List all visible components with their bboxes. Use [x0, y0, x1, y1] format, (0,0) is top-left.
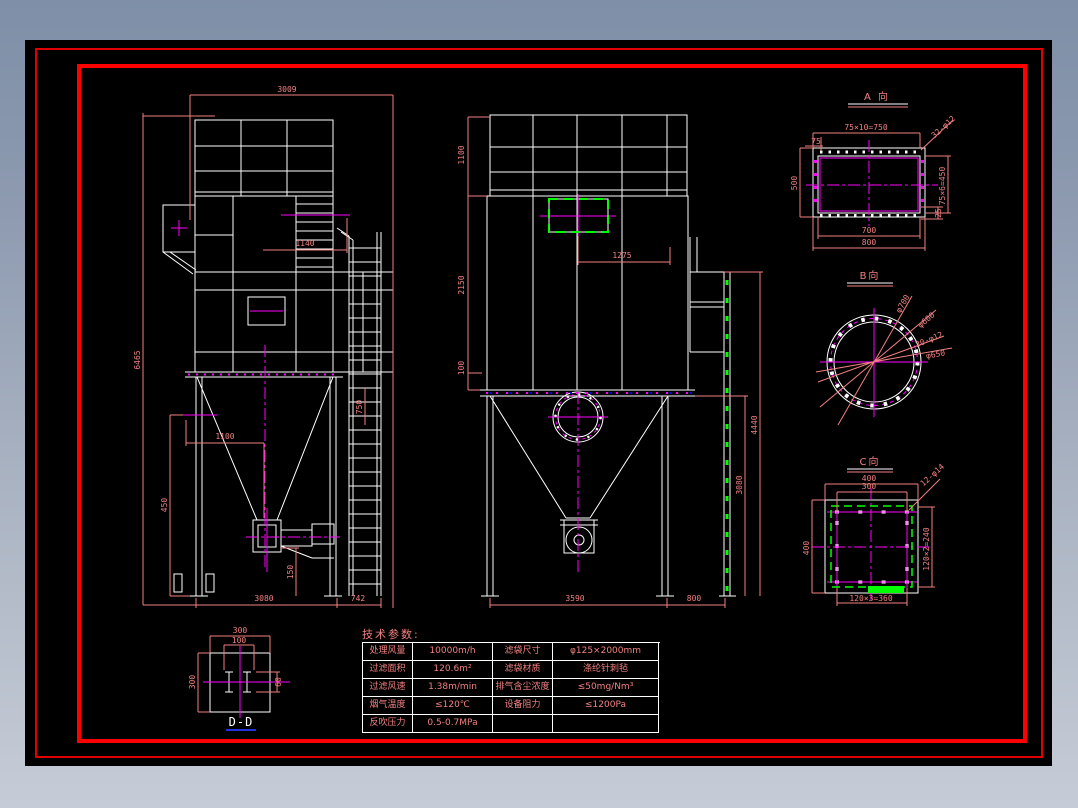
dim-150: 150 [286, 565, 295, 580]
dim-flange-width: 800 [862, 238, 877, 247]
dim-left-height: 500 [790, 176, 799, 191]
param-value: 涤纶针刺毡 [553, 661, 659, 679]
dim-opening-width: 700 [862, 226, 877, 235]
selected-object-highlight [868, 586, 904, 593]
param-value: ≤120℃ [413, 697, 493, 715]
dim-right-height: 4440 [750, 415, 759, 434]
dim-overall-height: 6465 [133, 350, 142, 369]
parameters-table: 技术参数: 处理风量 10000m/h 滤袋尺寸 φ125×2000mm 过滤面… [362, 626, 660, 733]
detail-b-title: B向 [860, 269, 881, 282]
param-label: 处理风量 [363, 643, 413, 661]
dim-inlet-offset: 1275 [612, 251, 631, 260]
param-label: 滤袋材质 [493, 661, 553, 679]
dim-1100: 1100 [215, 432, 234, 441]
param-label: 过滤风速 [363, 679, 413, 697]
param-label: 反吹压力 [363, 715, 413, 733]
cad-viewer-window: { "sheet": { "background": "#000000", "b… [0, 0, 1078, 808]
dim-base-width: 3590 [565, 594, 584, 603]
detail-a-title: A 向 [864, 90, 890, 103]
param-value [553, 715, 659, 733]
dim-leg-height: 3080 [735, 475, 744, 494]
dim-750: 750 [355, 400, 364, 415]
param-value: 0.5-0.7MPa [413, 715, 493, 733]
dim-right-offset: 800 [687, 594, 702, 603]
param-label: 设备阻力 [493, 697, 553, 715]
param-label: 烟气温度 [363, 697, 413, 715]
param-value: ≤50mg/Nm³ [553, 679, 659, 697]
param-value: ≤1200Pa [553, 697, 659, 715]
param-value: φ125×2000mm [553, 643, 659, 661]
dim-overall-width: 3009 [277, 85, 296, 94]
param-value: 120.6m² [413, 661, 493, 679]
dim-450: 450 [160, 498, 169, 513]
dim-75: 75 [811, 137, 821, 146]
param-label [493, 715, 553, 733]
dim-left-height: 400 [802, 541, 811, 556]
parameters-table-title: 技术参数: [362, 626, 660, 642]
dim-bolt-spacing-side: 120×2=240 [922, 527, 931, 571]
dim-bolt-spacing-top: 75×10=750 [844, 123, 888, 132]
detail-d-title: D-D [229, 715, 254, 729]
dim-base-width: 3080 [254, 594, 273, 603]
dim-100: 100 [457, 361, 466, 376]
dim-top-height: 1100 [457, 145, 466, 164]
param-value: 10000m/h [413, 643, 493, 661]
param-value: 1.38m/min [413, 679, 493, 697]
dim-opening: 300 [862, 482, 877, 491]
parameters-table-grid: 处理风量 10000m/h 滤袋尺寸 φ125×2000mm 过滤面积 120.… [362, 642, 660, 733]
param-label: 排气含尘浓度 [493, 679, 553, 697]
dim-bolt-spacing-side: 75×6=450 [938, 167, 947, 206]
detail-c-title: C向 [860, 455, 881, 468]
dim-height: 300 [188, 675, 197, 690]
dim-bolt-spacing-bottom: 120×3=360 [849, 594, 893, 603]
dim-body-height: 2150 [457, 275, 466, 294]
dim-25: 25 [934, 208, 943, 218]
param-label: 滤袋尺寸 [493, 643, 553, 661]
dim-width: 300 [233, 626, 248, 635]
dim-beam: 60 [274, 677, 283, 687]
param-label: 过滤面积 [363, 661, 413, 679]
dim-1140: 1140 [295, 239, 314, 248]
dim-ladder-offset: 742 [351, 594, 366, 603]
dim-beam-spacing: 100 [232, 636, 247, 645]
